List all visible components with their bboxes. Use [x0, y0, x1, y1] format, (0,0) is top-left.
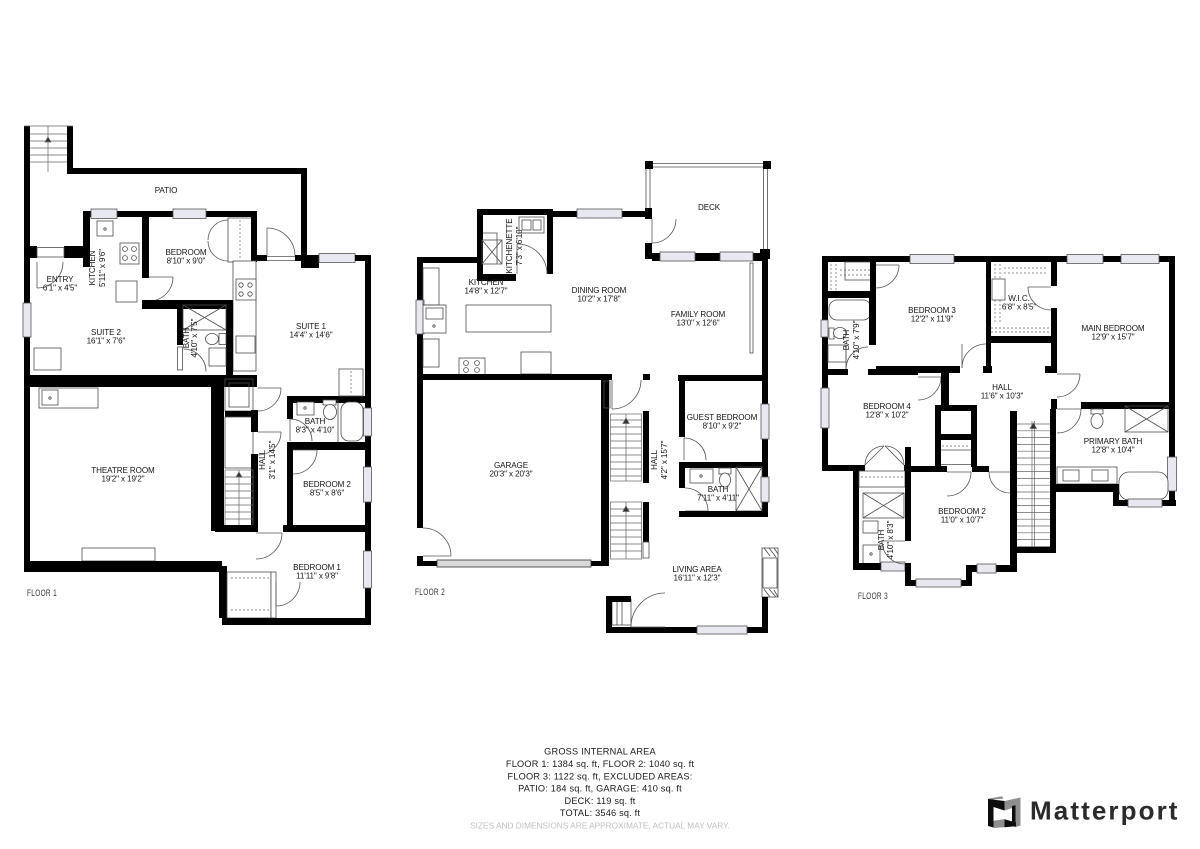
- svg-text:KITCHEN: KITCHEN: [88, 250, 97, 285]
- svg-text:8'5" x 8'6": 8'5" x 8'6": [310, 489, 345, 498]
- svg-text:PATIO: 184 sq. ft, GARAGE: 410: PATIO: 184 sq. ft, GARAGE: 410 sq. ft: [518, 784, 682, 794]
- svg-text:12'9" x 15'7": 12'9" x 15'7": [1091, 333, 1134, 342]
- svg-text:14'4" x 14'6": 14'4" x 14'6": [289, 331, 332, 340]
- svg-text:8'3" x 4'10": 8'3" x 4'10": [296, 426, 335, 435]
- svg-text:13'0" x 12'6": 13'0" x 12'6": [676, 319, 719, 328]
- svg-text:10'2" x 17'8": 10'2" x 17'8": [577, 295, 620, 304]
- svg-text:6'8" x 8'5": 6'8" x 8'5": [1002, 303, 1037, 312]
- svg-text:FLOOR 1: FLOOR 1: [27, 588, 57, 599]
- svg-text:3'1" x 14'5": 3'1" x 14'5": [268, 440, 277, 479]
- svg-text:20'3" x 20'3": 20'3" x 20'3": [489, 470, 532, 479]
- svg-text:16'1" x 7'6": 16'1" x 7'6": [87, 337, 126, 346]
- svg-text:7'3" x 6'10": 7'3" x 6'10": [515, 226, 524, 265]
- svg-text:8'10" x 9'2": 8'10" x 9'2": [703, 422, 742, 431]
- svg-text:FLOOR 2: FLOOR 2: [415, 587, 445, 598]
- svg-text:11'6" x 10'3": 11'6" x 10'3": [981, 392, 1024, 401]
- svg-text:DECK: 119 sq. ft: DECK: 119 sq. ft: [565, 796, 636, 806]
- svg-text:FLOOR 3: FLOOR 3: [858, 591, 888, 602]
- svg-text:TOTAL: 3546 sq. ft: TOTAL: 3546 sq. ft: [560, 808, 641, 818]
- svg-text:HALL: HALL: [650, 449, 659, 469]
- svg-text:6'1" x 4'5": 6'1" x 4'5": [43, 284, 78, 293]
- svg-text:HALL: HALL: [258, 449, 267, 469]
- svg-text:11'0" x 10'7": 11'0" x 10'7": [941, 516, 984, 525]
- svg-text:Matterport: Matterport: [1030, 796, 1180, 826]
- svg-text:BATH: BATH: [877, 529, 886, 550]
- svg-text:FLOOR 1: 1384 sq. ft, FLOOR 2:: FLOOR 1: 1384 sq. ft, FLOOR 2: 1040 sq. …: [506, 759, 694, 769]
- svg-text:5'11" x 9'6": 5'11" x 9'6": [98, 249, 107, 287]
- svg-text:16'11" x 12'3": 16'11" x 12'3": [674, 574, 721, 583]
- svg-text:BATH: BATH: [842, 329, 851, 350]
- svg-text:12'2" x 11'9": 12'2" x 11'9": [911, 315, 954, 324]
- svg-text:4'10" x 7'5": 4'10" x 7'5": [190, 318, 199, 357]
- svg-text:12'8" x 10'2": 12'8" x 10'2": [865, 411, 908, 420]
- svg-text:DECK: DECK: [698, 203, 721, 212]
- svg-text:SIZES AND DIMENSIONS ARE APPRO: SIZES AND DIMENSIONS ARE APPROXIMATE, AC…: [470, 821, 730, 831]
- svg-text:PATIO: PATIO: [155, 186, 178, 195]
- svg-text:KITCHENETTE: KITCHENETTE: [505, 218, 514, 274]
- svg-text:12'8" x 10'4": 12'8" x 10'4": [1091, 446, 1134, 455]
- svg-text:7'11" x 4'11": 7'11" x 4'11": [697, 494, 739, 503]
- svg-text:4'2" x 15'7": 4'2" x 15'7": [660, 440, 669, 479]
- svg-text:GROSS INTERNAL AREA: GROSS INTERNAL AREA: [544, 747, 656, 757]
- svg-text:4'10" x 8'3": 4'10" x 8'3": [886, 520, 895, 559]
- svg-text:8'10" x 9'0": 8'10" x 9'0": [167, 257, 206, 266]
- svg-text:4'10" x 7'9": 4'10" x 7'9": [852, 320, 861, 359]
- svg-text:11'11" x 9'8": 11'11" x 9'8": [296, 572, 338, 581]
- svg-text:FLOOR 3: 1122 sq. ft, EXCLUDED: FLOOR 3: 1122 sq. ft, EXCLUDED AREAS:: [508, 771, 693, 781]
- svg-text:14'8" x 12'7": 14'8" x 12'7": [464, 287, 507, 296]
- svg-text:19'2" x 19'2": 19'2" x 19'2": [101, 475, 144, 484]
